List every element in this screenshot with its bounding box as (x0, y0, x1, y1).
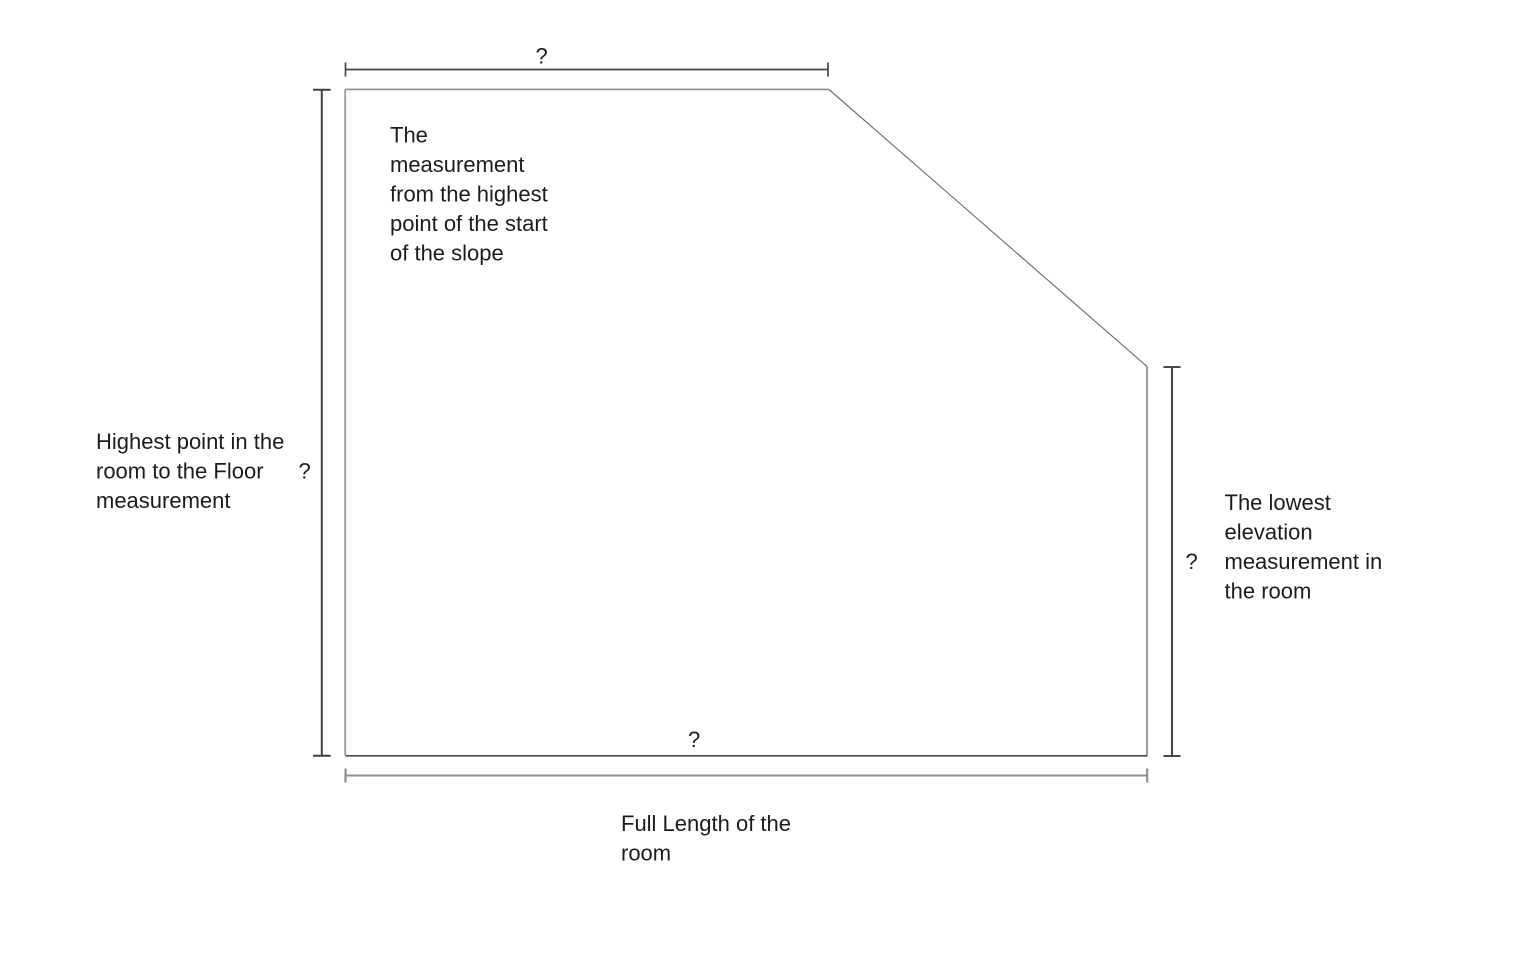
svg-text:?: ? (299, 459, 311, 484)
svg-text:The lowest: The lowest (1225, 490, 1331, 515)
svg-text:Highest point in the: Highest point in the (96, 429, 284, 454)
svg-text:The: The (390, 123, 428, 148)
svg-text:room to the Floor: room to the Floor (96, 459, 264, 484)
svg-text:?: ? (1186, 549, 1198, 574)
svg-text:?: ? (688, 727, 700, 752)
svg-text:from the highest: from the highest (390, 182, 548, 207)
svg-text:elevation: elevation (1225, 520, 1313, 545)
svg-text:the room: the room (1225, 579, 1312, 604)
svg-text:measurement in: measurement in (1225, 549, 1383, 574)
svg-text:measurement: measurement (96, 488, 231, 513)
svg-text:room: room (621, 841, 671, 866)
svg-text:measurement: measurement (390, 152, 525, 177)
svg-text:of the slope: of the slope (390, 241, 504, 266)
svg-text:point of the start: point of the start (390, 211, 548, 236)
svg-text:Full Length of the: Full Length of the (621, 811, 791, 836)
svg-text:?: ? (536, 43, 548, 68)
